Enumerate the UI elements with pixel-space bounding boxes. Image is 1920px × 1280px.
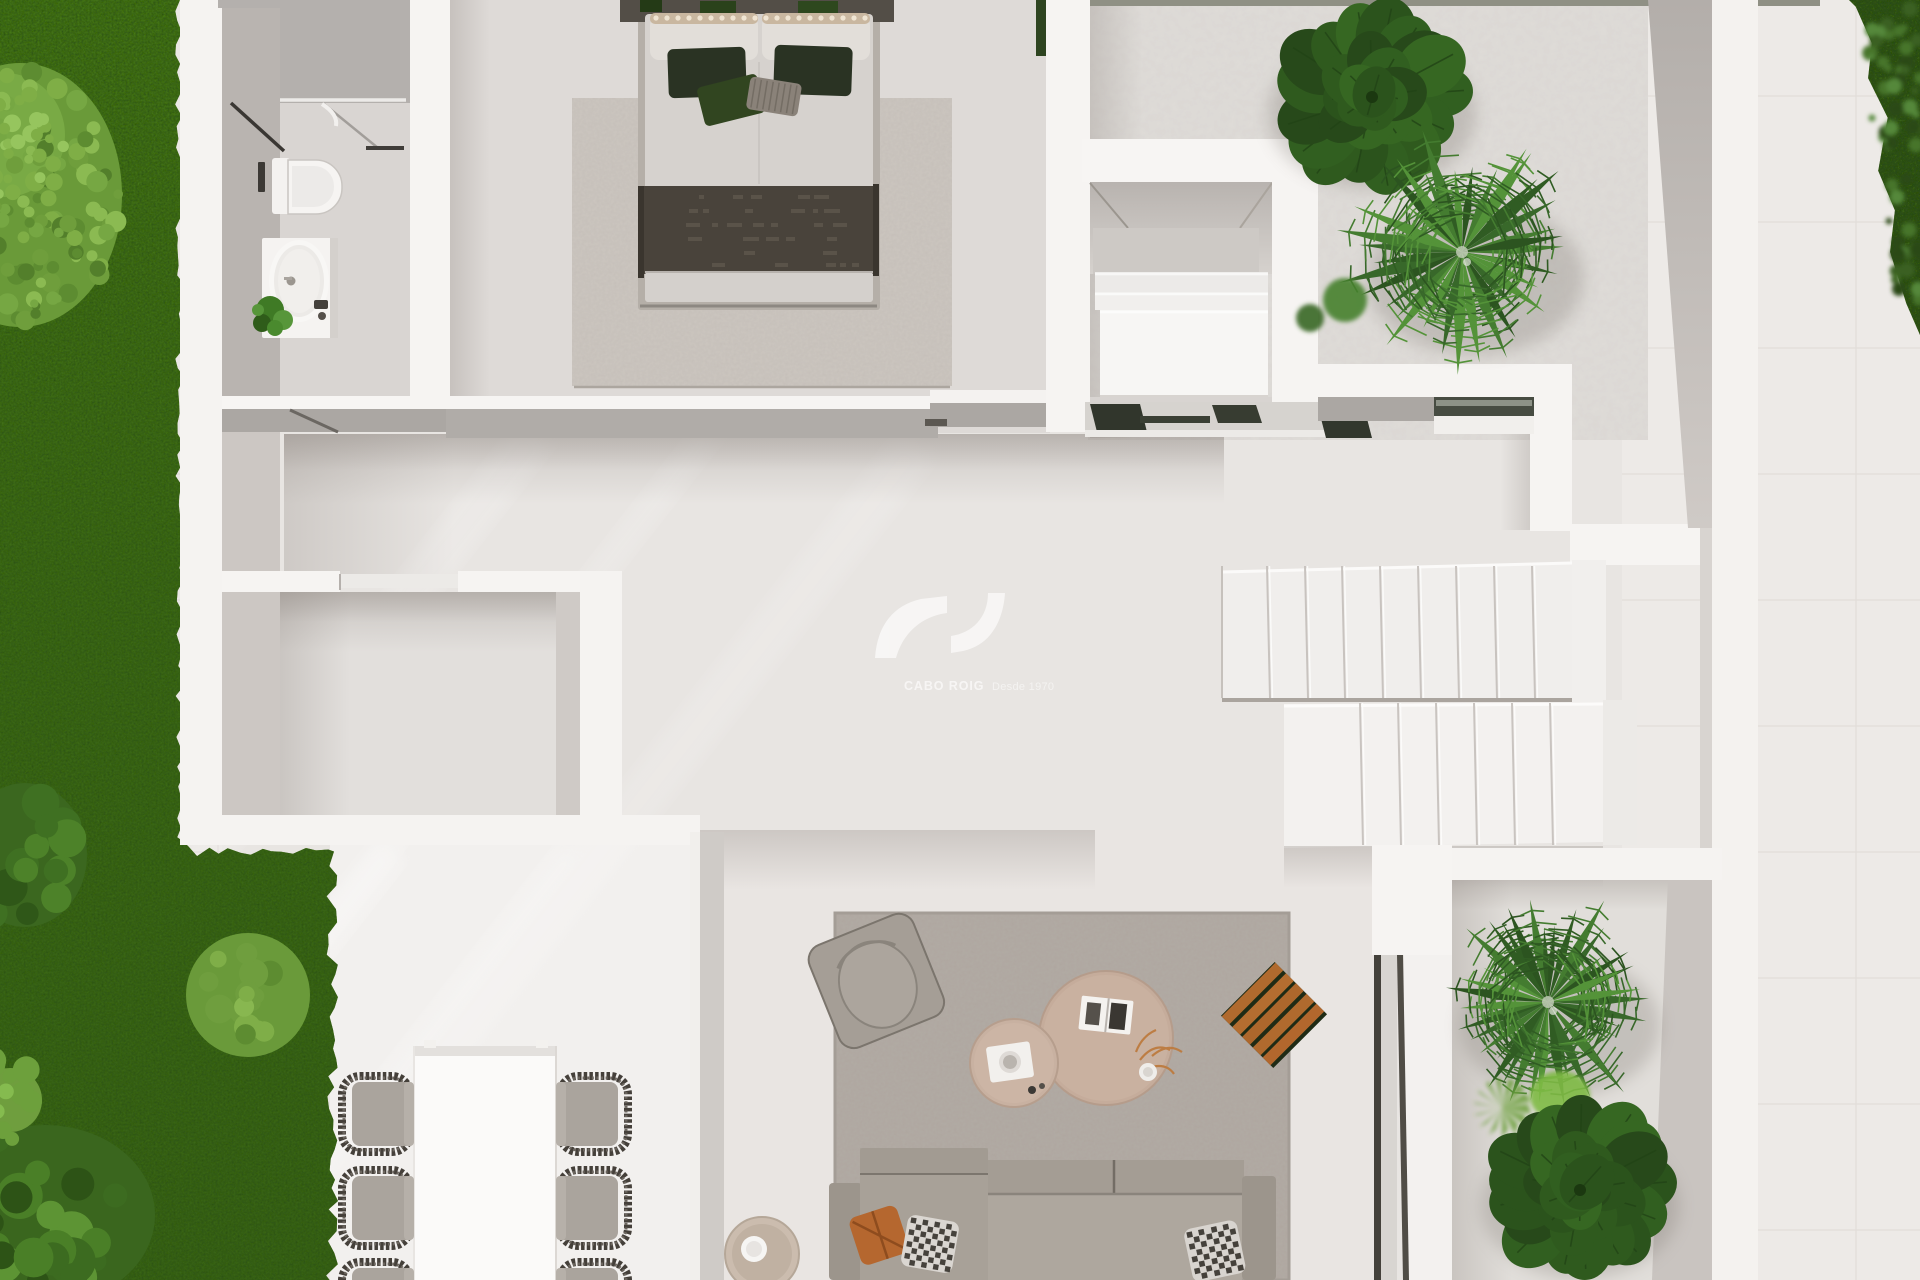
svg-text:Desde 1970: Desde 1970 xyxy=(992,681,1054,693)
svg-text:CABO ROIG: CABO ROIG xyxy=(904,679,984,693)
